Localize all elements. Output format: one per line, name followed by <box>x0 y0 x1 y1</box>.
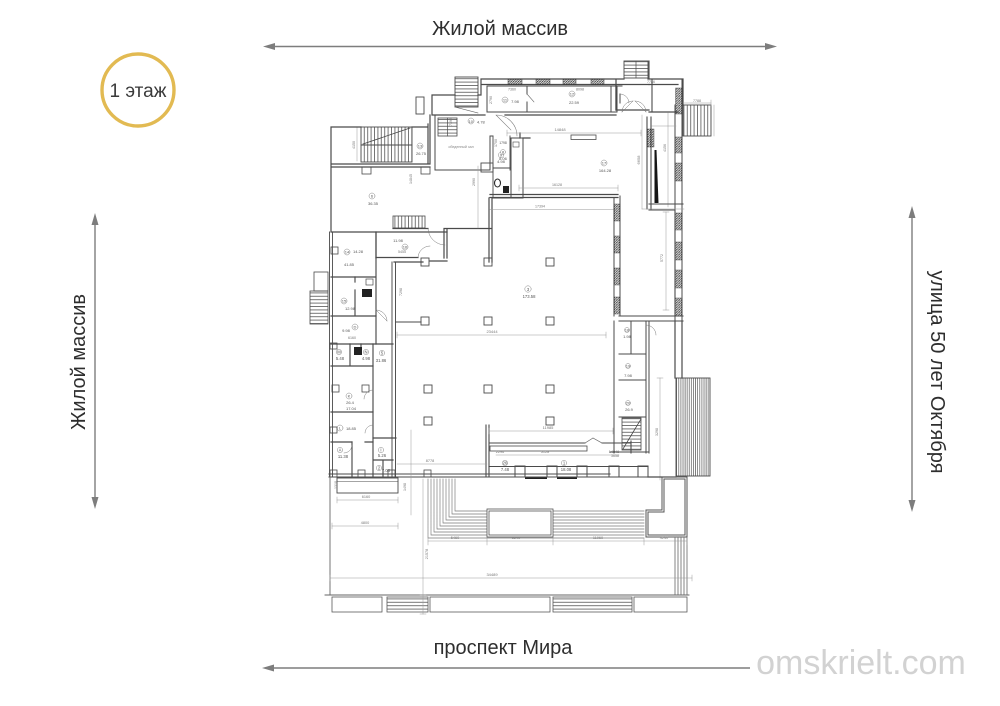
svg-text:3658: 3658 <box>611 454 619 458</box>
svg-text:4156: 4156 <box>663 144 667 152</box>
svg-text:7.48: 7.48 <box>501 467 510 472</box>
svg-text:I: I <box>380 448 381 453</box>
svg-text:7.06: 7.06 <box>382 468 391 473</box>
svg-text:5772: 5772 <box>660 254 664 262</box>
svg-text:1 этаж: 1 этаж <box>110 81 167 102</box>
svg-text:2990: 2990 <box>472 178 476 186</box>
svg-text:26.75: 26.75 <box>416 151 427 156</box>
svg-text:17.04: 17.04 <box>346 406 357 411</box>
svg-text:11960: 11960 <box>593 536 603 540</box>
svg-text:8778: 8778 <box>426 459 434 463</box>
svg-text:Жилой массив: Жилой массив <box>432 18 568 40</box>
svg-text:8098: 8098 <box>576 88 584 92</box>
svg-text:1700: 1700 <box>494 139 498 147</box>
svg-text:8.06: 8.06 <box>499 156 508 161</box>
svg-text:1498: 1498 <box>403 483 407 491</box>
svg-text:14: 14 <box>345 250 350 255</box>
svg-text:11985: 11985 <box>543 425 555 430</box>
svg-text:14845: 14845 <box>409 174 413 184</box>
svg-text:7360: 7360 <box>508 88 516 92</box>
svg-text:2296: 2296 <box>496 450 504 454</box>
svg-text:Жилой массив: Жилой массив <box>68 294 90 430</box>
svg-text:20: 20 <box>626 400 631 405</box>
svg-text:164.28: 164.28 <box>599 168 612 173</box>
svg-text:22.59: 22.59 <box>569 100 580 105</box>
svg-text:18: 18 <box>625 327 630 332</box>
svg-text:11.38: 11.38 <box>338 454 349 459</box>
svg-text:7788: 7788 <box>693 99 701 103</box>
svg-text:5.26: 5.26 <box>378 453 387 458</box>
svg-text:34489: 34489 <box>486 572 498 577</box>
svg-text:11.98: 11.98 <box>393 238 403 243</box>
svg-text:1798: 1798 <box>499 141 507 145</box>
svg-text:23444: 23444 <box>486 329 498 334</box>
svg-text:26.4: 26.4 <box>346 400 355 405</box>
svg-text:2790: 2790 <box>489 96 493 104</box>
svg-text:41.85: 41.85 <box>344 262 355 267</box>
svg-text:4800: 4800 <box>361 521 369 525</box>
svg-text:D: D <box>354 325 357 330</box>
svg-text:6160: 6160 <box>348 336 356 340</box>
svg-text:N: N <box>364 350 367 355</box>
svg-text:4150: 4150 <box>352 141 356 149</box>
svg-text:1.98: 1.98 <box>623 334 632 339</box>
svg-text:12: 12 <box>570 92 575 97</box>
svg-text:5128: 5128 <box>541 450 549 454</box>
svg-text:7.98: 7.98 <box>624 373 633 378</box>
svg-text:16: 16 <box>403 245 408 250</box>
svg-text:19: 19 <box>626 363 631 368</box>
svg-text:6240: 6240 <box>512 536 520 540</box>
svg-text:26.9: 26.9 <box>625 407 634 412</box>
svg-text:улица 50 лет Октября: улица 50 лет Октября <box>926 271 948 474</box>
svg-text:1318: 1318 <box>334 481 338 489</box>
svg-text:3298: 3298 <box>655 428 659 436</box>
svg-text:7.98: 7.98 <box>511 99 520 104</box>
svg-text:7786: 7786 <box>647 80 655 84</box>
svg-text:14848: 14848 <box>554 127 566 132</box>
svg-text:6160: 6160 <box>362 495 370 499</box>
svg-text:173.58: 173.58 <box>523 294 536 299</box>
svg-text:7398: 7398 <box>449 118 453 126</box>
svg-text:5.48: 5.48 <box>336 356 345 361</box>
svg-text:9.98: 9.98 <box>342 328 351 333</box>
svg-text:10: 10 <box>469 119 474 124</box>
svg-text:7298: 7298 <box>399 288 403 296</box>
svg-text:13: 13 <box>418 144 423 149</box>
svg-text:26: 26 <box>503 460 508 465</box>
svg-text:14.28: 14.28 <box>353 249 364 254</box>
svg-text:12.98: 12.98 <box>345 306 356 311</box>
svg-text:5460: 5460 <box>451 536 459 540</box>
svg-text:omskrielt.com: omskrielt.com <box>756 644 966 682</box>
svg-text:A: A <box>339 448 342 453</box>
svg-text:5455: 5455 <box>398 250 406 254</box>
svg-text:M: M <box>337 350 341 355</box>
svg-text:K: K <box>348 394 351 399</box>
svg-text:16128: 16128 <box>552 183 562 187</box>
svg-text:36.35: 36.35 <box>368 201 379 206</box>
svg-text:18.85: 18.85 <box>346 426 357 431</box>
svg-text:проспект Мира: проспект Мира <box>434 637 574 659</box>
svg-text:обеденный зал: обеденный зал <box>448 145 473 149</box>
svg-text:4.98: 4.98 <box>362 356 371 361</box>
svg-text:4.78: 4.78 <box>477 120 486 125</box>
svg-text:4240: 4240 <box>660 536 668 540</box>
svg-text:31.86: 31.86 <box>376 358 387 363</box>
svg-text:21578: 21578 <box>425 549 429 560</box>
svg-text:17: 17 <box>602 161 607 166</box>
svg-text:15: 15 <box>342 299 347 304</box>
svg-text:17394: 17394 <box>535 205 545 209</box>
svg-text:6658: 6658 <box>636 155 641 165</box>
svg-text:18.08: 18.08 <box>561 467 572 472</box>
